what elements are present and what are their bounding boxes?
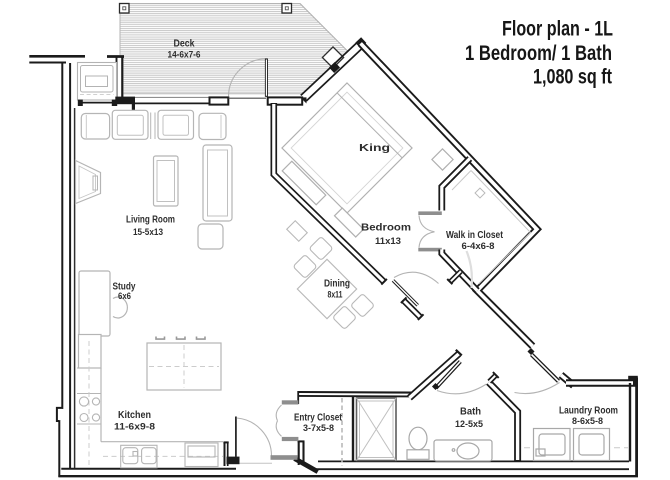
svg-text:15-5x13: 15-5x13 bbox=[133, 227, 163, 238]
svg-text:Floor plan - 1L: Floor plan - 1L bbox=[502, 17, 613, 41]
svg-text:3-7x5-8: 3-7x5-8 bbox=[303, 423, 334, 434]
svg-text:Deck: Deck bbox=[174, 38, 195, 50]
svg-text:1 Bedroom/ 1 Bath: 1 Bedroom/ 1 Bath bbox=[465, 41, 612, 65]
svg-text:Laundry Room: Laundry Room bbox=[559, 405, 618, 417]
svg-text:Dining: Dining bbox=[324, 278, 350, 290]
svg-text:Bath: Bath bbox=[460, 406, 481, 418]
svg-text:12-5x5: 12-5x5 bbox=[455, 419, 484, 430]
svg-text:Bedroom: Bedroom bbox=[361, 222, 411, 234]
svg-text:Kitchen: Kitchen bbox=[118, 409, 151, 421]
svg-text:11x13: 11x13 bbox=[375, 236, 401, 247]
svg-text:Entry Closet: Entry Closet bbox=[294, 412, 342, 424]
svg-text:6-4x6-8: 6-4x6-8 bbox=[462, 241, 495, 252]
svg-text:14-6x7-6: 14-6x7-6 bbox=[168, 50, 201, 61]
svg-text:8x11: 8x11 bbox=[328, 290, 344, 301]
svg-text:6x6: 6x6 bbox=[118, 291, 131, 302]
svg-text:1,080 sq ft: 1,080 sq ft bbox=[533, 65, 612, 89]
svg-text:Walk in Closet: Walk in Closet bbox=[446, 229, 503, 241]
svg-text:Living Room: Living Room bbox=[126, 214, 175, 226]
svg-text:8-6x5-8: 8-6x5-8 bbox=[572, 416, 603, 427]
svg-text:King: King bbox=[359, 142, 390, 154]
svg-text:11-6x9-8: 11-6x9-8 bbox=[114, 422, 155, 433]
